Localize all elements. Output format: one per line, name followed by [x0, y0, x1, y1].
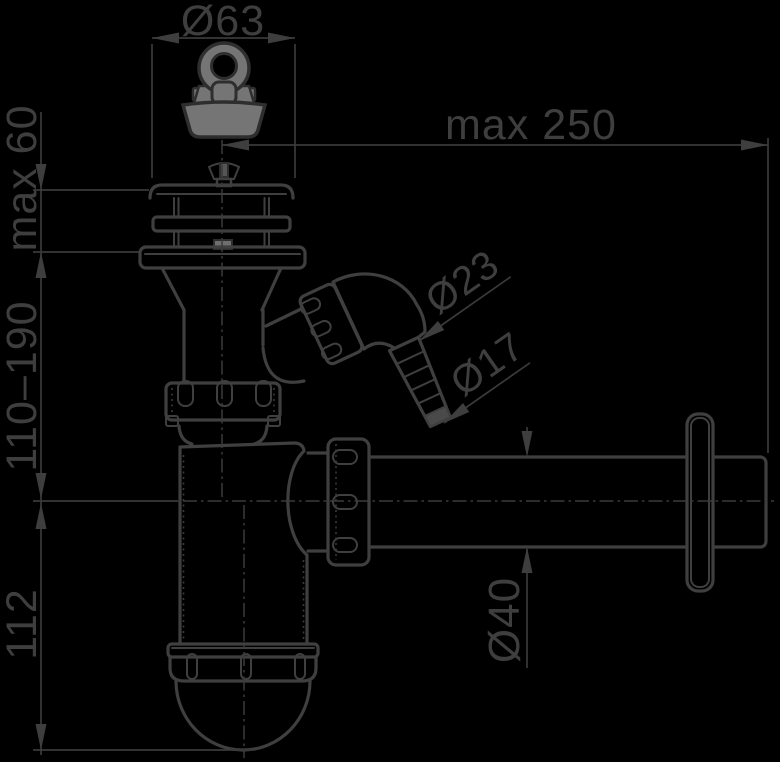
arrow-right-icon [268, 33, 295, 44]
plug-ring-hole [212, 54, 237, 79]
drawing-canvas: Ø63 max 250 max 60 110–190 112 Ø40 Ø [0, 0, 780, 762]
dim-label-110-190: 110–190 [0, 300, 46, 471]
siphon-technical-drawing: Ø63 max 250 max 60 110–190 112 Ø40 Ø [0, 0, 780, 762]
dim-label-o40: Ø40 [480, 577, 529, 663]
arrow-up-icon [36, 252, 47, 278]
arrow-right-icon [741, 140, 768, 151]
sink-plug [183, 43, 265, 137]
branch-shoulder [263, 348, 304, 382]
arrow-down-icon [522, 431, 533, 457]
hose-barb [389, 337, 454, 428]
arrow-up-icon [522, 547, 533, 573]
arrow-up-icon [36, 503, 47, 529]
dim-label-112: 112 [0, 588, 46, 660]
pipe-end [713, 457, 766, 547]
union-nut [166, 381, 280, 444]
arrow-down-icon [36, 724, 47, 750]
trap-body [180, 443, 330, 643]
bottom-cup [168, 644, 318, 750]
wall-rosette [687, 414, 713, 591]
dim-label-o63: Ø63 [181, 0, 265, 45]
arrow-down-icon [36, 473, 47, 499]
strainer-screw [209, 163, 239, 186]
union-cone [179, 426, 267, 444]
dim-label-max250: max 250 [445, 101, 617, 149]
dim-label-max60: max 60 [0, 104, 46, 251]
plug-body [183, 102, 265, 137]
branch-port-edge [266, 308, 303, 326]
screw-slot [220, 163, 228, 177]
cup-bowl [176, 681, 310, 750]
arrow-left-icon [152, 33, 179, 44]
arrow-left-icon [222, 140, 249, 151]
outlet-nut [328, 439, 369, 565]
